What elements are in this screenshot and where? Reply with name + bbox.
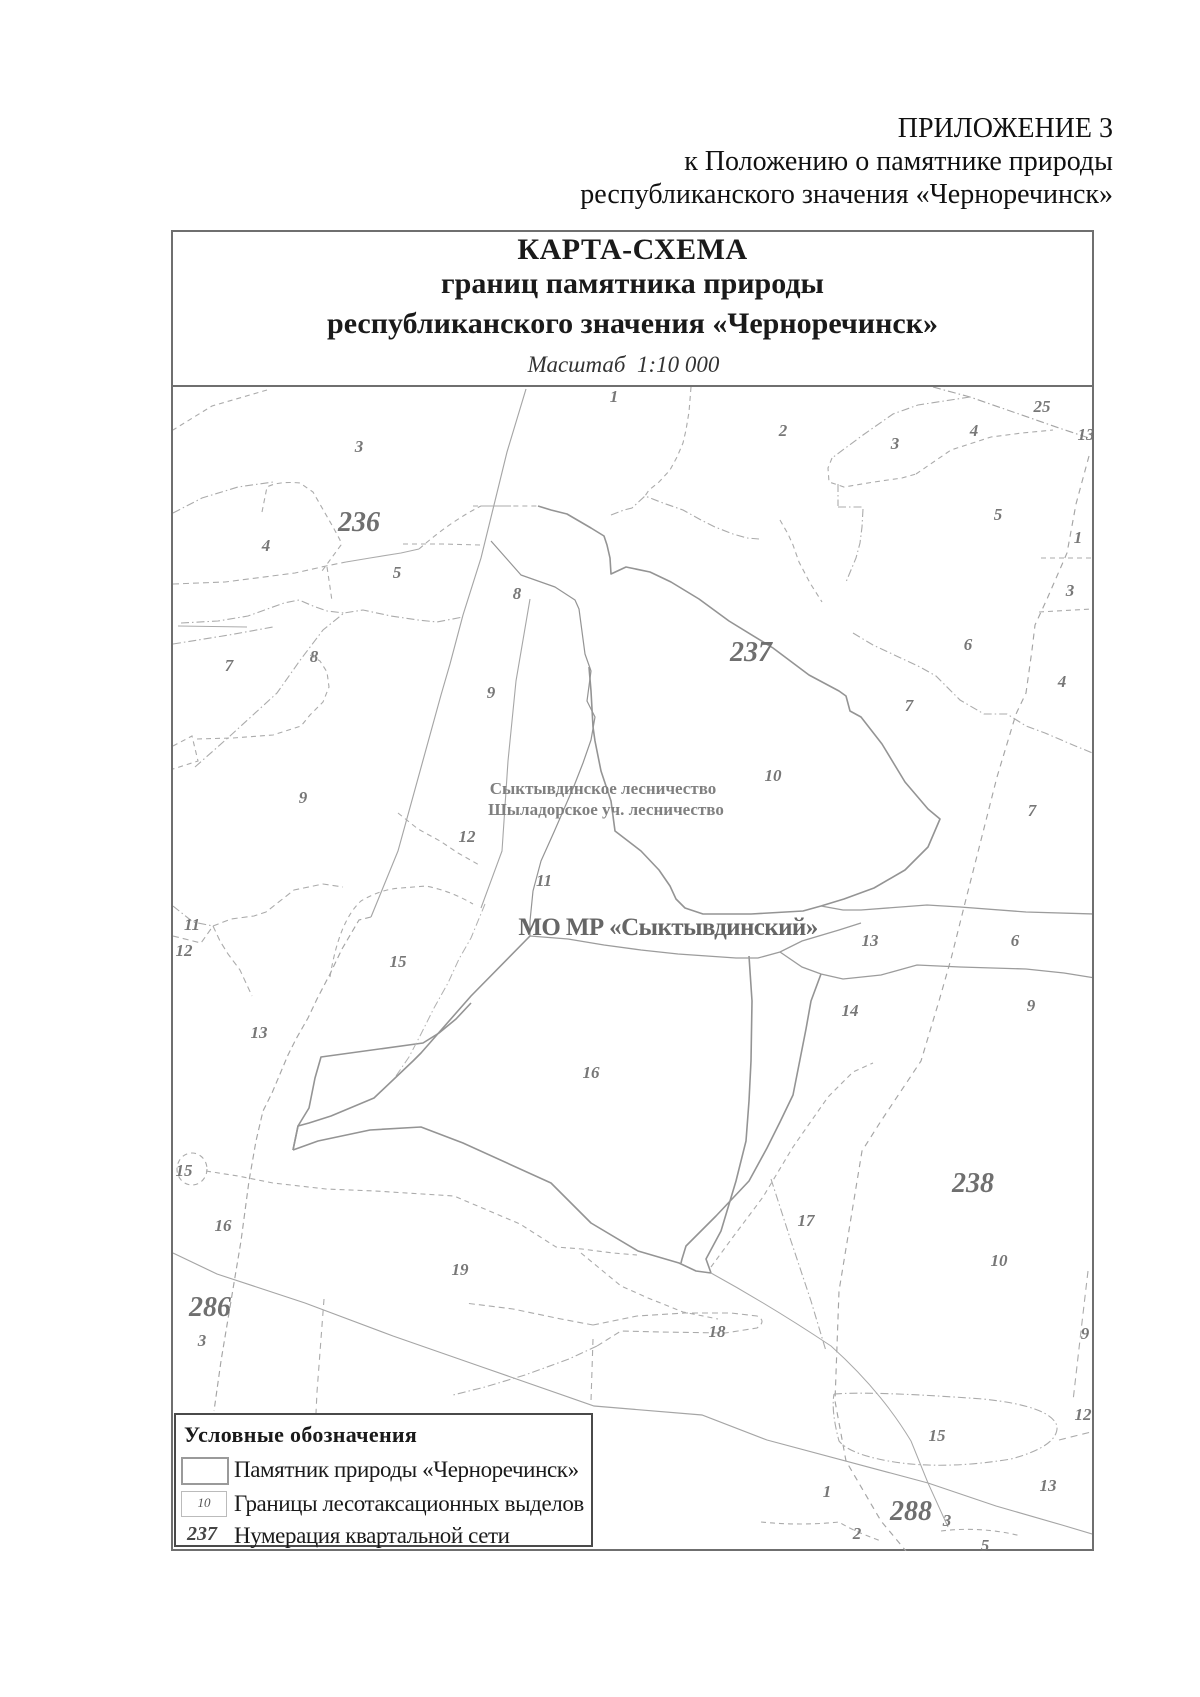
svg-text:2: 2 xyxy=(778,421,788,440)
svg-text:4: 4 xyxy=(1057,672,1067,691)
svg-text:288: 288 xyxy=(889,1496,932,1527)
svg-text:Шыладорское уч. лесничество: Шыладорское уч. лесничество xyxy=(488,800,724,819)
svg-text:3: 3 xyxy=(1065,581,1075,600)
svg-text:9: 9 xyxy=(1081,1324,1090,1343)
svg-text:236: 236 xyxy=(337,507,380,538)
svg-text:17: 17 xyxy=(798,1211,817,1230)
svg-text:25: 25 xyxy=(1033,397,1052,416)
svg-text:13: 13 xyxy=(1078,425,1093,444)
svg-text:12: 12 xyxy=(176,941,194,960)
svg-text:13: 13 xyxy=(251,1023,269,1042)
svg-text:8: 8 xyxy=(513,584,522,603)
svg-text:16: 16 xyxy=(583,1063,601,1082)
svg-text:14: 14 xyxy=(842,1001,859,1020)
svg-text:5: 5 xyxy=(994,505,1003,524)
svg-text:МО МР «Сыктывдинский»: МО МР «Сыктывдинский» xyxy=(518,914,817,941)
svg-text:12: 12 xyxy=(459,827,477,846)
svg-text:15: 15 xyxy=(176,1161,194,1180)
svg-text:18: 18 xyxy=(709,1322,727,1341)
svg-text:6: 6 xyxy=(1011,931,1020,950)
svg-text:3: 3 xyxy=(942,1511,952,1530)
svg-text:9: 9 xyxy=(299,788,308,807)
svg-text:9: 9 xyxy=(487,683,496,702)
svg-text:13: 13 xyxy=(862,931,880,950)
svg-text:7: 7 xyxy=(1028,801,1038,820)
svg-text:9: 9 xyxy=(1027,996,1036,1015)
svg-text:19: 19 xyxy=(452,1260,470,1279)
svg-text:286: 286 xyxy=(188,1292,231,1323)
svg-text:3: 3 xyxy=(354,437,364,456)
svg-text:7: 7 xyxy=(905,696,915,715)
svg-text:11: 11 xyxy=(536,871,552,890)
svg-text:1: 1 xyxy=(610,387,619,406)
svg-text:5: 5 xyxy=(393,563,402,582)
svg-text:1: 1 xyxy=(1074,528,1083,547)
svg-text:7: 7 xyxy=(225,656,235,675)
svg-text:Сыктывдинское лесничество: Сыктывдинское лесничество xyxy=(490,779,717,798)
svg-text:16: 16 xyxy=(215,1216,233,1235)
svg-text:11: 11 xyxy=(184,915,200,934)
svg-text:2: 2 xyxy=(852,1524,862,1543)
svg-text:1: 1 xyxy=(823,1482,832,1501)
svg-text:5: 5 xyxy=(981,1536,990,1551)
svg-text:4: 4 xyxy=(261,536,271,555)
svg-text:10: 10 xyxy=(765,766,783,785)
svg-text:3: 3 xyxy=(890,434,900,453)
svg-text:4: 4 xyxy=(969,421,979,440)
svg-text:15: 15 xyxy=(929,1426,947,1445)
svg-text:12: 12 xyxy=(1075,1405,1093,1424)
svg-text:13: 13 xyxy=(1040,1476,1058,1495)
svg-text:10: 10 xyxy=(991,1251,1009,1270)
svg-text:3: 3 xyxy=(197,1331,207,1350)
svg-text:238: 238 xyxy=(951,1168,994,1199)
svg-text:237: 237 xyxy=(729,637,773,668)
svg-text:6: 6 xyxy=(964,635,973,654)
svg-text:8: 8 xyxy=(310,647,319,666)
svg-text:15: 15 xyxy=(390,952,408,971)
